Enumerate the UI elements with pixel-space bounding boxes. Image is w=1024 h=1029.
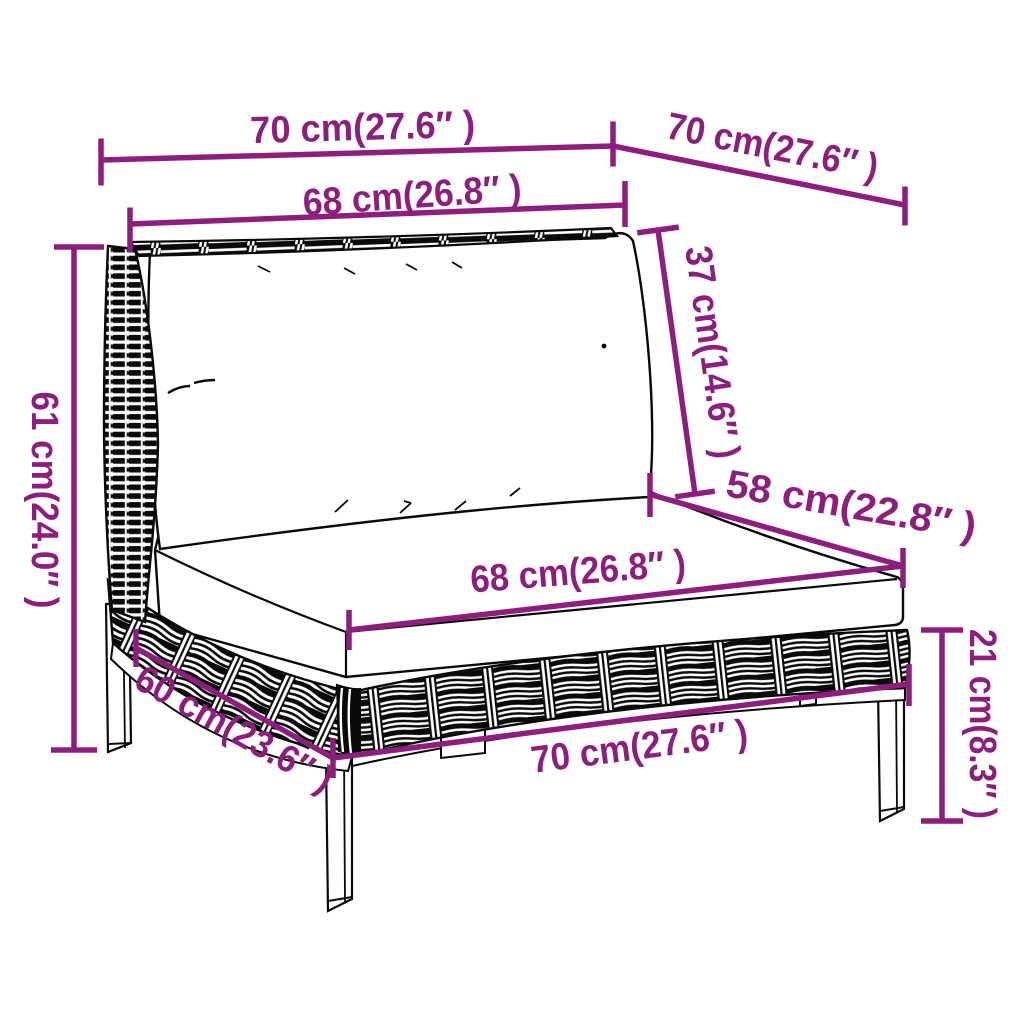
svg-text:21 cm(8.3″ ): 21 cm(8.3″ ) xyxy=(961,629,1003,819)
svg-text:61 cm(24.0″ ): 61 cm(24.0″ ) xyxy=(23,392,65,609)
svg-text:70 cm(27.6″ ): 70 cm(27.6″ ) xyxy=(250,104,476,152)
